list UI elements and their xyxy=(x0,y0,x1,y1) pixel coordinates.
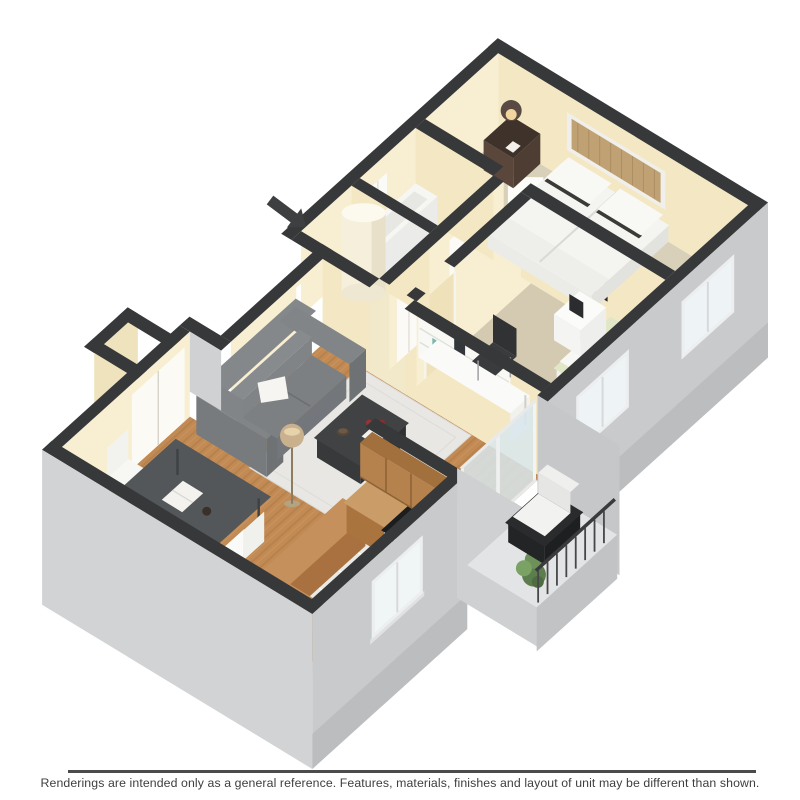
potted-plant xyxy=(516,560,532,576)
table-lamp-glow xyxy=(506,109,517,120)
entry-arrow xyxy=(267,196,306,228)
entry-arrow xyxy=(267,196,306,228)
table-bowl xyxy=(202,507,211,516)
water-heater-top xyxy=(342,203,386,222)
footer-divider xyxy=(68,770,756,773)
decor-bowl-inner xyxy=(339,428,348,433)
disclaimer-text: Renderings are intended only as a genera… xyxy=(0,776,800,790)
water-heater xyxy=(342,203,386,302)
floor-plan-rendering xyxy=(0,0,800,800)
water-heater-base xyxy=(342,283,386,302)
sliding-door-frame xyxy=(533,400,536,485)
floor-plan-page: Renderings are intended only as a genera… xyxy=(0,0,800,800)
floor-lamp-top xyxy=(284,428,300,436)
